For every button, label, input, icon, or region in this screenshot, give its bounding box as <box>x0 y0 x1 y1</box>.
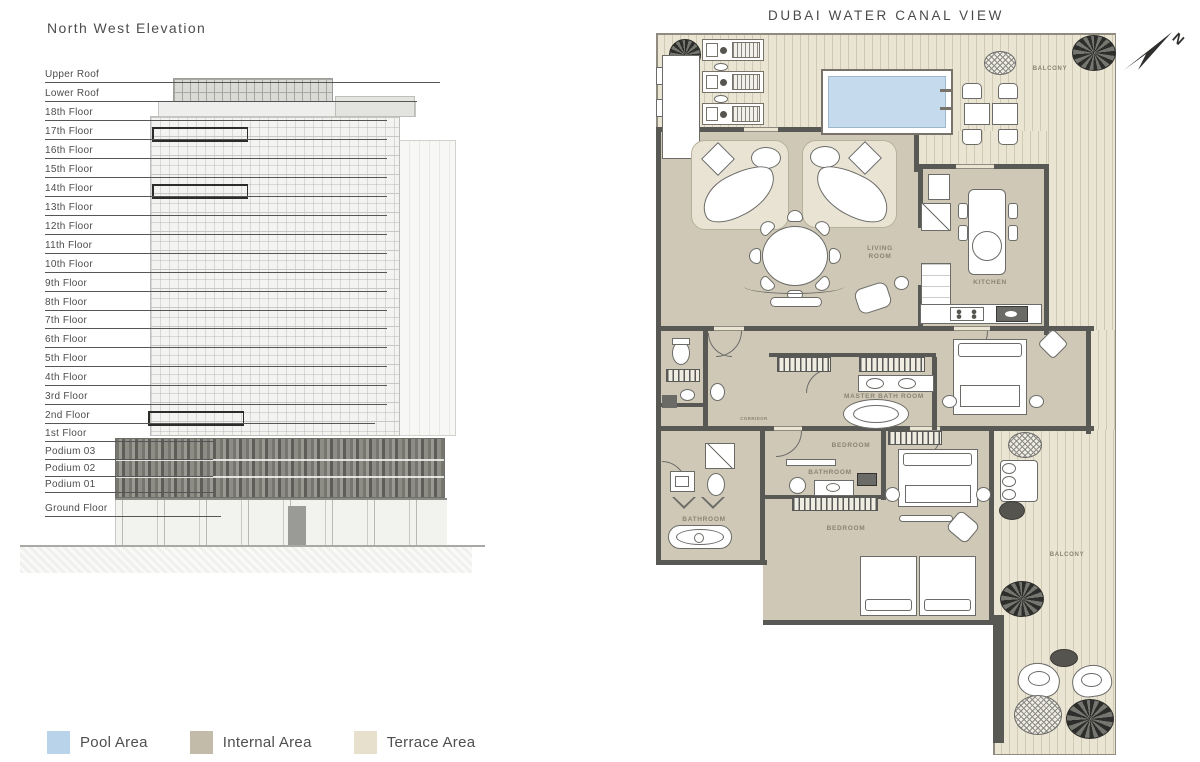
dining-chair <box>787 210 803 222</box>
terrace-area-label: Terrace Area <box>387 734 476 751</box>
plan-title: DUBAI WATER CANAL VIEW <box>656 8 1116 23</box>
nightstand <box>976 487 991 502</box>
terrace-table <box>964 103 990 125</box>
terrace-chair <box>998 129 1018 145</box>
floor-label: Podium 02 <box>45 463 96 474</box>
pool-area-swatch <box>47 731 70 754</box>
wall <box>989 430 994 624</box>
pool-ladder <box>940 107 952 110</box>
floor-leader-line <box>45 476 213 477</box>
floor-label: 18th Floor <box>45 107 93 118</box>
plan-border <box>993 754 1116 756</box>
floor-leader-line <box>45 139 387 140</box>
nightstand <box>885 487 900 502</box>
floor-label: Lower Roof <box>45 88 99 99</box>
floor-leader-line <box>45 177 387 178</box>
wall <box>703 330 708 428</box>
floor-label: 12th Floor <box>45 221 93 232</box>
legend: Pool Area Internal Area Terrace Area <box>47 731 475 754</box>
floor-label: 17th Floor <box>45 126 93 137</box>
floor-leader-line <box>45 272 387 273</box>
vanity-sink <box>826 483 840 492</box>
floor-leader-line <box>45 120 387 121</box>
planter-icon <box>1008 432 1042 458</box>
floor-label: Ground Floor <box>45 503 108 514</box>
floor-leader-line <box>45 82 440 83</box>
plan-border <box>993 743 995 755</box>
wall <box>993 615 1004 743</box>
plant-icon <box>1066 699 1114 739</box>
pillow <box>903 453 972 466</box>
cooktop <box>950 307 984 321</box>
plan-border <box>1115 33 1117 755</box>
elevation-podium <box>115 438 445 498</box>
floor-leader-line <box>45 366 387 367</box>
terrace-table <box>992 103 1018 125</box>
pillow <box>958 343 1022 357</box>
utility-closet <box>666 369 700 382</box>
floor-leader-line <box>45 385 387 386</box>
planter <box>656 67 663 85</box>
elevation-ground-floor <box>115 498 447 545</box>
floor-label: 9th Floor <box>45 278 87 289</box>
north-arrow-icon: N <box>1122 24 1188 80</box>
wash-basin <box>680 389 695 401</box>
elevation-title: North West Elevation <box>47 20 206 36</box>
blanket <box>960 385 1020 407</box>
tv-unit <box>857 473 877 486</box>
master-bedroom-label: BEDROOM <box>827 442 875 450</box>
pool-area-label: Pool Area <box>80 734 148 751</box>
floor-label: Podium 01 <box>45 479 96 490</box>
bathroom-mid-label: BATHROOM <box>806 469 854 477</box>
floor-leader-line <box>45 516 221 517</box>
vanity-sink <box>675 476 689 487</box>
master-bathroom-label: MASTER BATH ROOM <box>838 393 930 401</box>
kitchen-label: KITCHEN <box>960 279 1020 287</box>
toilet <box>710 383 725 401</box>
balcony-right-upper <box>1048 131 1116 330</box>
bar-stool <box>958 225 968 241</box>
floor-label: Upper Roof <box>45 69 99 80</box>
side-table <box>894 276 909 290</box>
floor-leader-line <box>45 253 387 254</box>
floor-label: 14th Floor <box>45 183 93 194</box>
floor-leader-line <box>45 234 387 235</box>
floor-plan: BALCONY LIVING ROOM KITCHEN CORRIDOR MAS… <box>656 33 1116 757</box>
legend-item-internal: Internal Area <box>190 731 312 754</box>
sun-lounger <box>702 39 764 61</box>
bench <box>899 515 953 522</box>
ottoman <box>810 146 840 168</box>
floor-leader-line <box>45 101 417 102</box>
toilet-tank <box>672 338 690 345</box>
pillow <box>865 599 912 611</box>
terrace-chair <box>998 83 1018 99</box>
elevation-lower-roof-right <box>335 96 415 117</box>
floor-leader-line <box>45 459 213 460</box>
wardrobe <box>777 357 831 372</box>
bar-stool <box>1008 225 1018 241</box>
floor-leader-line <box>45 441 213 442</box>
page: { "elevation": { "title": "North West El… <box>0 0 1200 762</box>
wardrobe <box>792 497 878 511</box>
bench-arc <box>744 279 844 294</box>
island-sink <box>972 231 1002 261</box>
floor-label: 10th Floor <box>45 259 93 270</box>
floor-leader-line <box>45 291 387 292</box>
vanity-sink <box>866 378 884 389</box>
wall <box>932 357 937 430</box>
vanity-sink <box>898 378 916 389</box>
floor-label: 2nd Floor <box>45 410 90 421</box>
pool-ladder <box>940 89 952 92</box>
shelf <box>786 459 836 466</box>
legend-item-terrace: Terrace Area <box>354 731 476 754</box>
floor-label: 3rd Floor <box>45 391 88 402</box>
chair-cushion <box>1028 671 1050 686</box>
planter <box>656 99 663 117</box>
plan-border <box>656 33 1116 35</box>
planter-icon <box>1014 695 1062 735</box>
kitchen-cabinet <box>921 263 951 307</box>
dining-chair <box>749 248 761 264</box>
floor-label: Podium 03 <box>45 446 96 457</box>
floor-label: 6th Floor <box>45 334 87 345</box>
floor-label: 4th Floor <box>45 372 87 383</box>
floor-label: 11th Floor <box>45 240 92 251</box>
sofa-cushion <box>1002 489 1016 500</box>
floor-leader-line <box>45 310 387 311</box>
sliding-door <box>956 164 994 169</box>
floor-leader-line <box>45 215 387 216</box>
drain <box>694 533 704 543</box>
wardrobe <box>888 431 942 445</box>
floor-leader-line <box>45 196 387 197</box>
plant-icon <box>1000 581 1044 617</box>
corridor-label: CORRIDOR <box>737 417 772 423</box>
legend-item-pool: Pool Area <box>47 731 148 754</box>
nightstand <box>942 395 957 408</box>
wardrobe <box>859 357 925 372</box>
elevation-annex <box>398 140 456 436</box>
floor-label: 5th Floor <box>45 353 87 364</box>
planter-icon <box>984 51 1016 75</box>
sofa-cushion <box>1002 476 1016 487</box>
console-bench <box>770 297 822 307</box>
terrace-chair <box>962 129 982 145</box>
chair-cushion <box>1081 673 1102 687</box>
wall <box>656 127 661 564</box>
wall <box>656 560 767 565</box>
floor-label: 15th Floor <box>45 164 93 175</box>
north-letter: N <box>1169 29 1187 48</box>
outdoor-table <box>999 501 1025 520</box>
floor-label: 1st Floor <box>45 428 87 439</box>
utility-box <box>662 395 677 408</box>
living-room-label: LIVING ROOM <box>855 245 905 262</box>
elevation-entrance-door <box>288 506 306 545</box>
internal-area-swatch <box>190 731 213 754</box>
swimming-pool <box>821 69 953 135</box>
corner-cabinet <box>921 203 951 231</box>
elevation-tower-facade <box>150 116 400 436</box>
floor-leader-line <box>45 423 375 424</box>
ground-hatch <box>20 547 472 573</box>
wall <box>1044 164 1049 335</box>
sink-basin <box>1004 310 1018 318</box>
floor-leader-line <box>45 404 387 405</box>
toilet <box>789 477 806 494</box>
fridge <box>928 174 950 200</box>
floor-leader-line <box>45 328 387 329</box>
balcony-right-label: BALCONY <box>1031 552 1103 560</box>
floor-leader-line <box>45 158 387 159</box>
bedroom-2-label: BEDROOM <box>822 525 870 533</box>
bar-stool <box>1008 203 1018 219</box>
pool-water <box>828 76 946 128</box>
wall <box>1086 330 1091 434</box>
bar-stool <box>958 203 968 219</box>
toilet <box>707 473 725 496</box>
floor-label: 13th Floor <box>45 202 93 213</box>
pillow <box>924 599 971 611</box>
floor-leader-line <box>45 492 213 493</box>
floor-label: 8th Floor <box>45 297 87 308</box>
wall <box>763 620 993 625</box>
sun-lounger <box>702 71 764 93</box>
balcony-right-narrow <box>1090 330 1116 430</box>
side-table <box>714 95 728 103</box>
side-table <box>714 63 728 71</box>
sliding-door <box>744 127 778 132</box>
bathtub-basin <box>853 405 899 423</box>
internal-area-label: Internal Area <box>223 734 312 751</box>
floor-label: 16th Floor <box>45 145 93 156</box>
balcony-top-label: BALCONY <box>1014 66 1086 74</box>
terrace-chair <box>962 83 982 99</box>
terrace-top-kitchen <box>918 131 1048 168</box>
bathroom-2-label: BATHROOM <box>676 516 732 524</box>
floor-label: 7th Floor <box>45 315 87 326</box>
north-arrow: N <box>1122 24 1188 80</box>
nightstand <box>1029 395 1044 408</box>
terrace-area-swatch <box>354 731 377 754</box>
luggage-closet <box>705 443 735 469</box>
outdoor-table <box>1050 649 1078 667</box>
floor-leader-line <box>45 347 387 348</box>
blanket <box>905 485 971 503</box>
sun-lounger <box>702 103 764 125</box>
sofa-cushion <box>1002 463 1016 474</box>
